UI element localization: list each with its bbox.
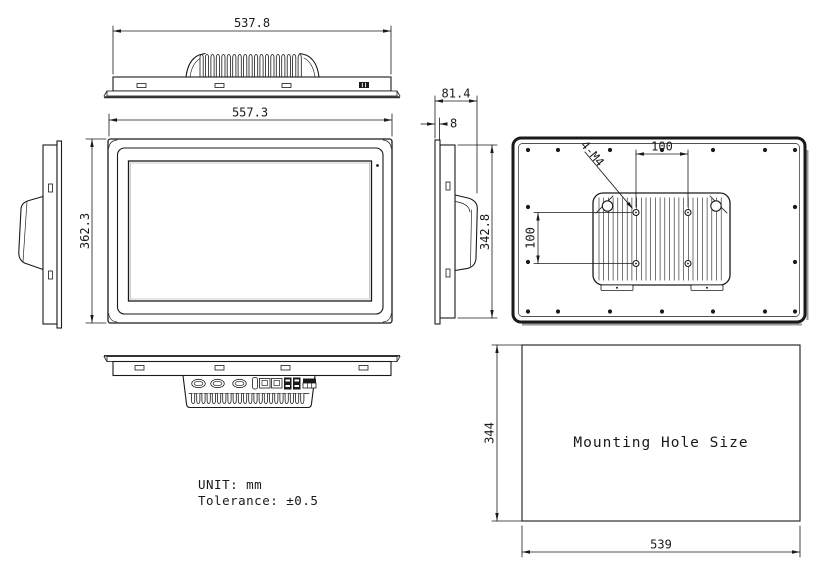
dimension-arrow bbox=[522, 550, 530, 553]
vent-slot bbox=[135, 366, 144, 371]
rj45-lan-port bbox=[260, 379, 271, 389]
heatsink-fin bbox=[233, 394, 236, 404]
side-body bbox=[440, 145, 455, 318]
heatsink-fin bbox=[207, 394, 210, 404]
cutout-height-dimension: 344 bbox=[483, 422, 497, 444]
heatsink-fin bbox=[197, 394, 200, 404]
heatsink-fin bbox=[280, 394, 283, 404]
heatsink-fin bbox=[293, 55, 296, 78]
heatsink-fin bbox=[264, 394, 267, 404]
vesa-hole-center bbox=[635, 263, 637, 265]
tolerance-note: Tolerance: ±0.5 bbox=[198, 493, 318, 508]
heatsink-fin bbox=[301, 394, 304, 404]
serial-db9-port bbox=[192, 379, 206, 387]
heatsink-fin bbox=[227, 55, 230, 78]
screw-dot bbox=[526, 148, 530, 152]
vent-slot bbox=[49, 271, 53, 279]
heatsink-fin bbox=[222, 55, 225, 78]
heatsink-fin bbox=[265, 55, 268, 78]
heatsink-fin bbox=[271, 55, 274, 78]
dimension-arrow bbox=[113, 29, 121, 32]
heatsink-fin bbox=[249, 55, 252, 78]
rj45-lan-port bbox=[272, 379, 283, 389]
front-view: 557.3 362.3 bbox=[78, 106, 392, 324]
heatsink-fin bbox=[238, 394, 241, 404]
bottom-chassis-bar bbox=[113, 362, 391, 376]
mounting-hole-view: 344 539 Mounting Hole Size bbox=[483, 345, 801, 557]
screw-dot bbox=[608, 148, 612, 152]
screw-dot bbox=[711, 309, 715, 313]
screw-dot bbox=[526, 205, 530, 209]
vent-slot bbox=[446, 269, 450, 277]
usb-port-stack bbox=[284, 378, 292, 390]
heatsink-fin bbox=[285, 394, 288, 404]
usb-slot bbox=[295, 385, 300, 387]
heatsink-fin bbox=[255, 55, 258, 78]
heatsink-fin bbox=[205, 55, 208, 78]
bottom-view bbox=[104, 356, 400, 408]
heatsink-fin bbox=[200, 55, 203, 78]
rear-heatsink-bump bbox=[19, 197, 43, 270]
heatsink-fin bbox=[228, 394, 231, 404]
heatsink-fin bbox=[260, 55, 263, 78]
display-screen bbox=[129, 161, 372, 301]
heatsink-fin bbox=[238, 55, 241, 78]
serial-db9-port bbox=[233, 379, 247, 387]
power-button bbox=[253, 378, 258, 390]
heatsink-fin bbox=[276, 55, 279, 78]
top-chassis-bar bbox=[113, 77, 391, 91]
front-width-dimension: 557.3 bbox=[232, 106, 268, 120]
screw-dot bbox=[793, 205, 797, 209]
vesa-hole-center bbox=[687, 263, 689, 265]
technical-drawing-sheet: 537.8 557.3 362.3 bbox=[0, 0, 832, 585]
vent-slot bbox=[137, 84, 146, 88]
top-width-dimension: 537.8 bbox=[234, 16, 270, 30]
dimension-arrow bbox=[90, 315, 93, 323]
screw-dot bbox=[660, 309, 664, 313]
heatsink-fin bbox=[282, 55, 285, 78]
front-bezel-edge bbox=[57, 141, 62, 328]
power-terminal-block bbox=[303, 383, 316, 388]
heatsink-fin bbox=[270, 394, 273, 404]
heatsink-fin bbox=[233, 55, 236, 78]
mounting-hole-label: Mounting Hole Size bbox=[573, 435, 748, 451]
screw-dot bbox=[793, 309, 797, 313]
usb-slot bbox=[286, 385, 291, 387]
power-led bbox=[376, 164, 379, 167]
power-terminal-top bbox=[303, 379, 316, 384]
heatsink-fin bbox=[218, 394, 221, 404]
heatsink-fin bbox=[296, 394, 299, 404]
screw-dot bbox=[763, 148, 767, 152]
dimension-arrow bbox=[109, 118, 117, 121]
heatsink-fin bbox=[211, 55, 214, 78]
dimension-arrow bbox=[792, 550, 800, 553]
usb-slot bbox=[286, 380, 291, 382]
screw-dot bbox=[793, 260, 797, 264]
drawing-notes: UNIT: mm Tolerance: ±0.5 bbox=[198, 477, 318, 508]
dimension-arrow bbox=[495, 345, 498, 353]
heatsink-fin bbox=[202, 394, 205, 404]
heatsink-fins-top bbox=[200, 55, 301, 78]
vent-slot bbox=[49, 184, 53, 192]
front-height-dimension: 362.3 bbox=[78, 213, 92, 249]
heatsink-fin bbox=[244, 55, 247, 78]
screw-dot bbox=[711, 148, 715, 152]
bezel-depth-dimension: 8 bbox=[450, 117, 457, 131]
handle-hole bbox=[602, 201, 612, 211]
cutout-width-dimension: 539 bbox=[650, 538, 672, 552]
vesa-hole-center bbox=[635, 212, 637, 214]
heatsink-fin bbox=[192, 394, 195, 404]
panel-pc-dimension-drawing: 537.8 557.3 362.3 bbox=[0, 0, 832, 585]
connector-block bbox=[359, 82, 369, 88]
front-bezel-edge bbox=[435, 140, 440, 324]
heatsink-fin bbox=[259, 394, 262, 404]
screw-dot bbox=[556, 309, 560, 313]
left-side-view bbox=[19, 141, 62, 328]
front-bezel-flange bbox=[107, 357, 397, 362]
screw-dot bbox=[793, 148, 797, 152]
heatsink-fin bbox=[254, 394, 257, 404]
usb-port-stack bbox=[293, 378, 301, 390]
heatsink-fin bbox=[244, 394, 247, 404]
screw-dot bbox=[526, 309, 530, 313]
heatsink-fin bbox=[216, 55, 219, 78]
dimension-arrow bbox=[490, 310, 493, 318]
vent-slot bbox=[215, 84, 224, 88]
depth-dimension: 81.4 bbox=[442, 87, 471, 101]
serial-db9-port bbox=[211, 379, 225, 387]
vesa-vertical-dimension: 100 bbox=[524, 227, 538, 249]
usb-slot bbox=[295, 380, 300, 382]
dimension-arrow bbox=[469, 99, 477, 102]
foot-screw bbox=[616, 287, 618, 289]
rear-heatsink bbox=[593, 193, 730, 285]
vesa-hole-center bbox=[687, 212, 689, 214]
dimension-arrow bbox=[490, 145, 493, 153]
heatsink-fin bbox=[212, 394, 215, 404]
dimension-arrow bbox=[383, 29, 391, 32]
vent-slot bbox=[359, 366, 368, 371]
vent-slot bbox=[446, 182, 450, 190]
screw-dot bbox=[763, 309, 767, 313]
dimension-arrow bbox=[435, 99, 443, 102]
screw-dot bbox=[556, 148, 560, 152]
dimension-arrow bbox=[427, 122, 435, 125]
dimension-arrow bbox=[384, 118, 392, 121]
rear-heatsink-bump bbox=[455, 195, 477, 271]
heatsink-fin bbox=[287, 55, 290, 78]
vent-slot bbox=[282, 84, 291, 88]
rear-view: 100 100 4-M4 bbox=[513, 138, 808, 325]
heatsink-fin bbox=[223, 394, 226, 404]
mounting-cutout-rect bbox=[522, 345, 800, 521]
screw-dot bbox=[526, 260, 530, 264]
body-height-dimension: 342.8 bbox=[478, 214, 492, 250]
screw-dot bbox=[608, 309, 612, 313]
heatsink-fin bbox=[298, 55, 301, 78]
vent-slot bbox=[281, 366, 290, 371]
vent-slot bbox=[215, 366, 224, 371]
dimension-arrow bbox=[495, 513, 498, 521]
handle-hole bbox=[711, 201, 721, 211]
top-view: 537.8 bbox=[104, 16, 400, 97]
front-bezel-flange bbox=[107, 91, 397, 96]
side-body bbox=[43, 145, 57, 324]
heatsink-fin bbox=[249, 394, 252, 404]
heatsink-fin bbox=[290, 394, 293, 404]
right-side-view: 81.4 8 342.8 bbox=[421, 87, 497, 325]
foot-screw bbox=[706, 287, 708, 289]
unit-note: UNIT: mm bbox=[198, 477, 262, 492]
dimension-arrow bbox=[440, 122, 448, 125]
heatsink-shoulder-right bbox=[300, 54, 319, 78]
heatsink-fin bbox=[275, 394, 278, 404]
dimension-arrow bbox=[90, 139, 93, 147]
vesa-horizontal-dimension: 100 bbox=[651, 140, 673, 154]
